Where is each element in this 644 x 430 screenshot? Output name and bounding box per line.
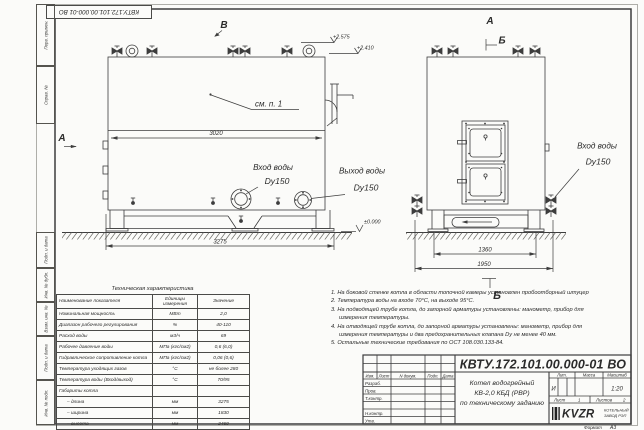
svg-text:КОТЕЛЬНЫЙ: КОТЕЛЬНЫЙ (604, 408, 629, 413)
elevation-zero: ±0.000 (364, 220, 380, 226)
svg-text:ЗАВОД РЭП: ЗАВОД РЭП (604, 413, 627, 418)
dim-3275: 3275 (213, 240, 227, 246)
manufacturer-logo: KVZR КОТЕЛЬНЫЙ ЗАВОД РЭП (552, 407, 629, 421)
svg-text:Лит.: Лит. (556, 373, 567, 378)
sidebar-box: Инв. № дубл. (36, 268, 55, 302)
table-row: Диапазон рабочего регулирования%40-110 (57, 320, 250, 331)
sheet-counts: Лист 1 Листов 2 (553, 397, 626, 402)
svg-text:Пров.: Пров. (365, 389, 377, 394)
sidebar-label: Подп. и дата (43, 344, 48, 372)
doc-designation: КВТУ.172.101.00.000-01 ВО (460, 358, 627, 372)
sidebar-box: Инв. № подл. (36, 380, 55, 425)
svg-text:Дата: Дата (441, 373, 454, 378)
furnace-doors (458, 121, 509, 204)
side-ground (406, 233, 566, 240)
table-row: Температура воды (Вход/выход)°С70/95 (57, 375, 250, 386)
dim-1360: 1360 (478, 248, 492, 254)
table-row: Рабочее давление водыМПа (кгс/см2)0,6 (6… (57, 342, 250, 353)
table-row: – длинамм3275 (57, 397, 250, 408)
table-row: Гидравлическое сопротивление котлаМПа (к… (57, 353, 250, 364)
svg-text:Листов: Листов (595, 397, 613, 402)
svg-text:2: 2 (622, 397, 626, 402)
inlet-dn: Dy150 (265, 176, 290, 186)
section-letter-top: Б (498, 36, 505, 47)
svg-text:N докум.: N докум. (400, 373, 417, 378)
drawing-sheet: В А см. п. 1 3020 3275 +2.575 +2.410 ±0.… (0, 0, 644, 430)
svg-text:КВ-2,0 КБД (РВР): КВ-2,0 КБД (РВР) (474, 390, 529, 397)
svg-text:Котел водогрейный: Котел водогрейный (470, 379, 535, 387)
svg-text:Утв.: Утв. (365, 419, 375, 424)
sidebar-label: Подп. и дата (43, 236, 48, 264)
table-row: Габариты котла (57, 386, 250, 397)
front-view-letter-left: А (57, 133, 65, 144)
sidebar-box: Взам. инв. № (36, 302, 55, 336)
svg-text:Масса: Масса (583, 373, 596, 378)
side-inlet-dn: Dy150 (586, 157, 611, 167)
elevation-2410: +2.410 (357, 46, 374, 52)
side-view-letter-top: А (485, 16, 493, 27)
doc-title: Котел водогрейный КВ-2,0 КБД (РВР) по те… (460, 379, 544, 407)
side-view (412, 46, 556, 232)
corner-designation-stamp: КВТУ.172.101.00.000-01 ВО (46, 5, 152, 19)
sidebar-box: Подп. и дата (36, 232, 55, 268)
sidebar-box: Перв. примен. (36, 4, 55, 66)
chimney-stub (325, 84, 353, 126)
inlet-label: Вход воды (253, 163, 293, 172)
note-line: 2. Температура воды на входе 70°С, на вы… (331, 297, 635, 305)
table-row: Расход водым3/ч69 (57, 331, 250, 342)
sidebar-box: Подп. и дата (36, 336, 55, 380)
svg-text:KVZR: KVZR (562, 409, 595, 421)
svg-text:Т.контр.: Т.контр. (365, 396, 383, 401)
spec-header-row: Наименование показателя Единицы измерени… (57, 295, 250, 309)
spec-table: Техническая характеристика Наименование … (56, 284, 249, 430)
note-line: 3. На подводящей трубе котла, до запорно… (331, 306, 635, 314)
dim-3020: 3020 (209, 131, 223, 137)
svg-text:Подп.: Подп. (427, 373, 438, 378)
side-inlet-label: Вход воды (577, 142, 617, 151)
svg-text:И: И (551, 387, 556, 393)
svg-text:Формат: Формат (584, 425, 602, 430)
table-row: – высотамм2460 (57, 419, 250, 430)
note-line: 1. На боковой стенке котла в области топ… (331, 289, 635, 297)
side-annotations (415, 39, 579, 288)
svg-text:Лист: Лист (378, 373, 390, 378)
dim-1950: 1950 (477, 262, 491, 268)
front-skid (106, 210, 334, 231)
sidebar-label: Справ. № (43, 85, 48, 105)
lit-mass-scale: Лит. Масса Масштаб И 1:20 (551, 373, 627, 393)
svg-text:Разраб.: Разраб. (365, 381, 381, 386)
see-note-ref: см. п. 1 (255, 100, 282, 109)
svg-text:Н.контр.: Н.контр. (365, 411, 384, 416)
notes-block: 1. На боковой стенке котла в области топ… (331, 289, 635, 348)
svg-text:1:20: 1:20 (611, 387, 623, 393)
svg-text:А3: А3 (609, 425, 616, 430)
front-ground (62, 233, 352, 240)
table-row: Температура уходящих газов°Сне более 280 (57, 364, 250, 375)
svg-text:Масштаб: Масштаб (607, 373, 627, 378)
svg-text:Лист: Лист (553, 397, 566, 402)
sidebar-label: Инв. № дубл. (43, 271, 48, 298)
outlet-label: Выход воды (339, 167, 385, 176)
front-annotations (64, 31, 363, 251)
inlet-flange (231, 189, 251, 209)
outlet-flange (295, 192, 312, 209)
svg-text:по техническому заданию: по техническому заданию (460, 399, 544, 407)
sidebar-box: Справ. № (36, 66, 55, 124)
elevation-2575: +2.575 (333, 35, 351, 41)
side-base (428, 210, 544, 232)
sidebar-label: Перв. примен. (43, 20, 48, 49)
svg-text:Изм.: Изм. (366, 373, 375, 378)
sidebar-label: Взам. инв. № (43, 305, 48, 332)
sidebar-label: Инв. № подл. (43, 389, 48, 416)
outlet-dn: Dy150 (354, 183, 379, 193)
table-row: – ширинамм1830 (57, 408, 250, 419)
role-labels: Разраб. Пров. Т.контр. Н.контр. Утв. (365, 381, 384, 424)
note-line: измерения температуры. (339, 314, 635, 322)
table-row: Номинальная мощностьМВт2,0 (57, 309, 250, 320)
note-line: 5. Остальные технические требования по О… (331, 339, 635, 347)
svg-text:1: 1 (578, 397, 581, 402)
format-note: Формат А3 (584, 425, 616, 430)
note-line: 4. На отводящей трубе котла, до запорной… (331, 323, 635, 331)
spec-table-title: Техническая характеристика (56, 284, 249, 294)
note-line: измерения температуры и два предохраните… (339, 331, 635, 339)
front-view-letter-top: В (220, 20, 227, 31)
